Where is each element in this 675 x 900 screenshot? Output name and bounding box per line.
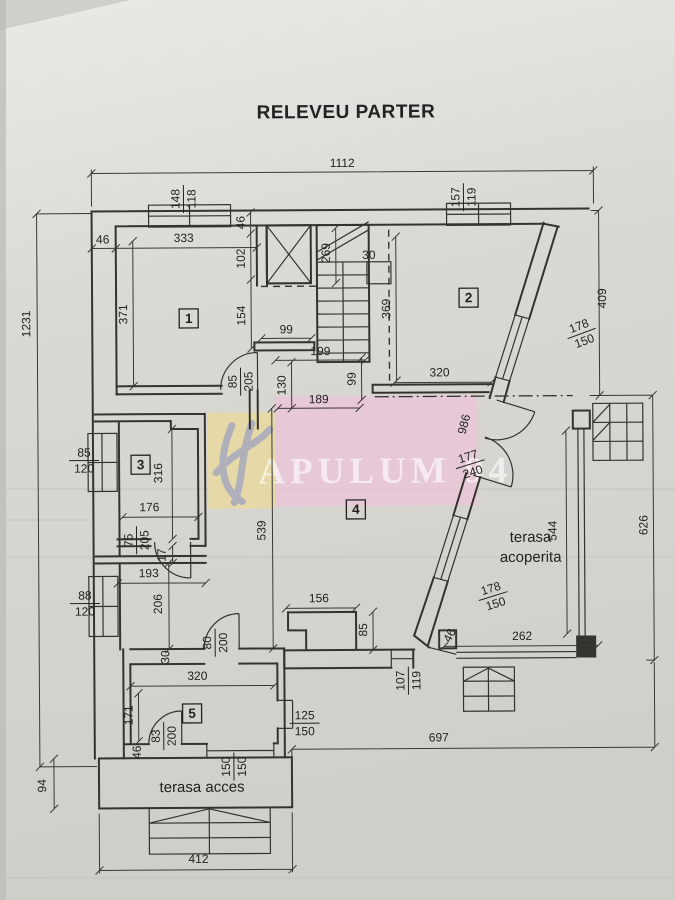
svg-text:205: 205 xyxy=(242,371,256,391)
dim-room4-height: 539 xyxy=(254,520,268,540)
dim-wall-17: 17 xyxy=(155,548,169,562)
dim-wall-46-topleft: 46 xyxy=(96,232,110,246)
svg-text:85: 85 xyxy=(77,446,91,460)
dim-v46-top: 46 xyxy=(234,216,248,230)
svg-text:119: 119 xyxy=(464,187,478,207)
dim-hall-99: 99 xyxy=(280,322,294,336)
dim-seg-206: 206 xyxy=(151,594,165,614)
room-1-label: 1 xyxy=(185,311,193,326)
room-5-label: 5 xyxy=(188,706,196,721)
svg-text:150: 150 xyxy=(235,756,249,776)
dim-terrace-bottom: 262 xyxy=(512,629,532,643)
floor-plan-canvas: APULUM 94 RELEVEU PARTER xyxy=(0,0,675,900)
svg-text:120: 120 xyxy=(75,604,95,618)
dim-bump-height: 85 xyxy=(356,623,370,637)
room-3-label: 3 xyxy=(137,457,145,472)
svg-text:148: 148 xyxy=(168,189,182,209)
dim-bottom-right: 697 xyxy=(429,730,449,744)
dim-wall-46-bl: 46 xyxy=(130,745,144,759)
dim-room2-width: 320 xyxy=(429,365,449,379)
dim-v154: 154 xyxy=(234,305,248,325)
dim-v102: 102 xyxy=(234,248,248,268)
svg-text:85: 85 xyxy=(226,375,240,389)
dim-seg-193: 193 xyxy=(139,566,159,580)
room-4-label: 4 xyxy=(352,502,360,517)
dim-stair-width: 269 xyxy=(319,243,333,263)
scanned-floor-plan-photo: APULUM 94 RELEVEU PARTER xyxy=(0,0,675,900)
dim-room1-height: 371 xyxy=(116,304,130,324)
svg-text:75: 75 xyxy=(122,533,136,547)
svg-text:157: 157 xyxy=(448,187,462,207)
dim-hall-99v: 99 xyxy=(345,372,359,386)
terrace-covered-label-line1: terasa xyxy=(510,529,552,546)
dim-room3-width: 176 xyxy=(139,500,159,514)
terrace-covered-label-line2: acoperita xyxy=(500,549,562,566)
dim-hall-189: 189 xyxy=(309,392,329,406)
dim-overall-left: 1231 xyxy=(19,310,33,337)
dim-bump-width: 156 xyxy=(309,591,329,605)
dim-hall-199: 199 xyxy=(310,344,330,358)
svg-text:83: 83 xyxy=(149,729,163,743)
svg-text:200: 200 xyxy=(216,632,230,652)
svg-text:125: 125 xyxy=(295,708,315,722)
dim-right-upper: 409 xyxy=(595,288,609,308)
svg-text:150: 150 xyxy=(295,724,315,738)
dim-bottom-left: 412 xyxy=(188,852,208,866)
dim-stair-30: 30 xyxy=(362,248,376,262)
dim-overall-top: 1112 xyxy=(330,156,355,170)
dim-opening-room5: 150 150 xyxy=(219,753,249,781)
dim-right-lower: 626 xyxy=(636,515,650,535)
dim-room5-width: 320 xyxy=(187,669,207,683)
dim-room2-height: 369 xyxy=(379,298,393,318)
svg-text:120: 120 xyxy=(74,462,94,476)
svg-text:107: 107 xyxy=(393,670,407,690)
dim-wall-30v: 30 xyxy=(158,650,172,664)
photo-left-edge xyxy=(0,0,6,900)
svg-text:80: 80 xyxy=(200,636,214,650)
svg-text:118: 118 xyxy=(184,189,198,209)
terrace-access-label: terasa acces xyxy=(159,779,244,797)
room-2-label: 2 xyxy=(465,290,473,305)
svg-text:119: 119 xyxy=(409,671,423,691)
terrace-post-bottomright xyxy=(576,635,596,657)
svg-text:205: 205 xyxy=(137,530,151,550)
dim-left-bottom: 94 xyxy=(35,779,49,793)
dim-hall-130: 130 xyxy=(275,375,289,395)
dim-room3-height: 316 xyxy=(151,463,165,483)
svg-text:88: 88 xyxy=(78,589,92,603)
dim-room5-height: 171 xyxy=(122,705,136,725)
page-title: RELEVEU PARTER xyxy=(257,101,436,123)
svg-text:150: 150 xyxy=(219,756,233,776)
dim-room1-width: 333 xyxy=(174,231,194,245)
svg-text:200: 200 xyxy=(165,726,179,746)
